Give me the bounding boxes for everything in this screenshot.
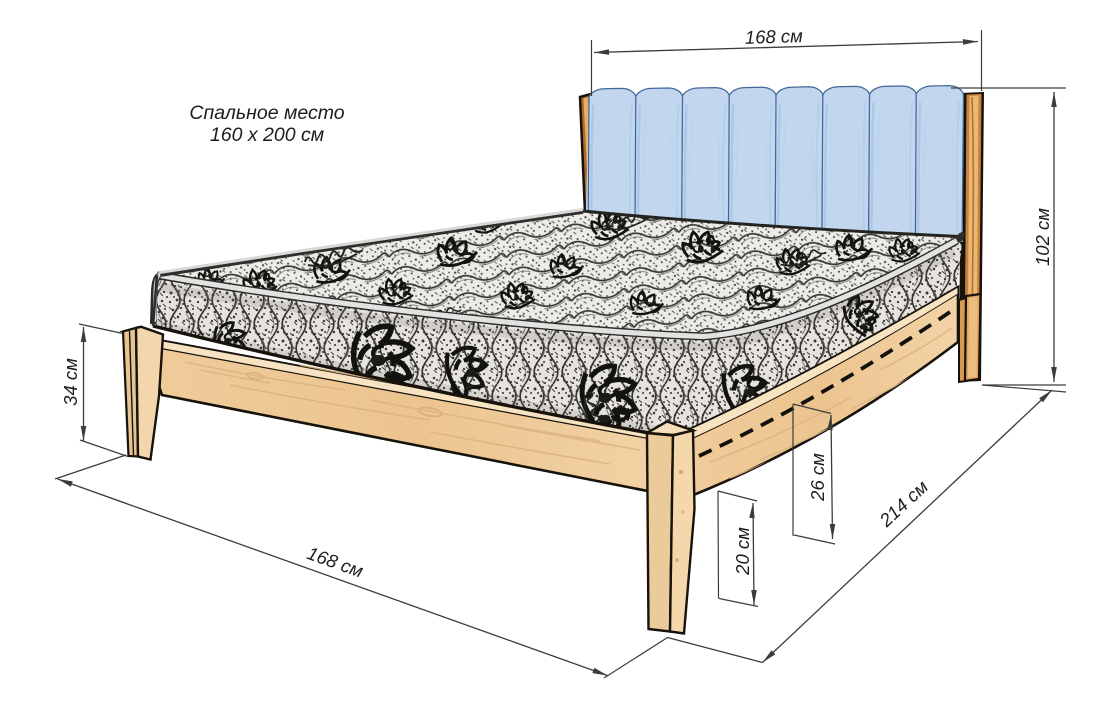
svg-text:26 см: 26 см	[807, 453, 828, 502]
svg-text:20 см: 20 см	[732, 527, 753, 576]
svg-text:168 см: 168 см	[745, 25, 804, 48]
svg-text:160 х 200 см: 160 х 200 см	[210, 124, 324, 146]
svg-text:34 см: 34 см	[60, 358, 81, 406]
svg-text:Спальное место: Спальное место	[189, 102, 344, 124]
svg-text:102 см: 102 см	[1032, 208, 1053, 266]
